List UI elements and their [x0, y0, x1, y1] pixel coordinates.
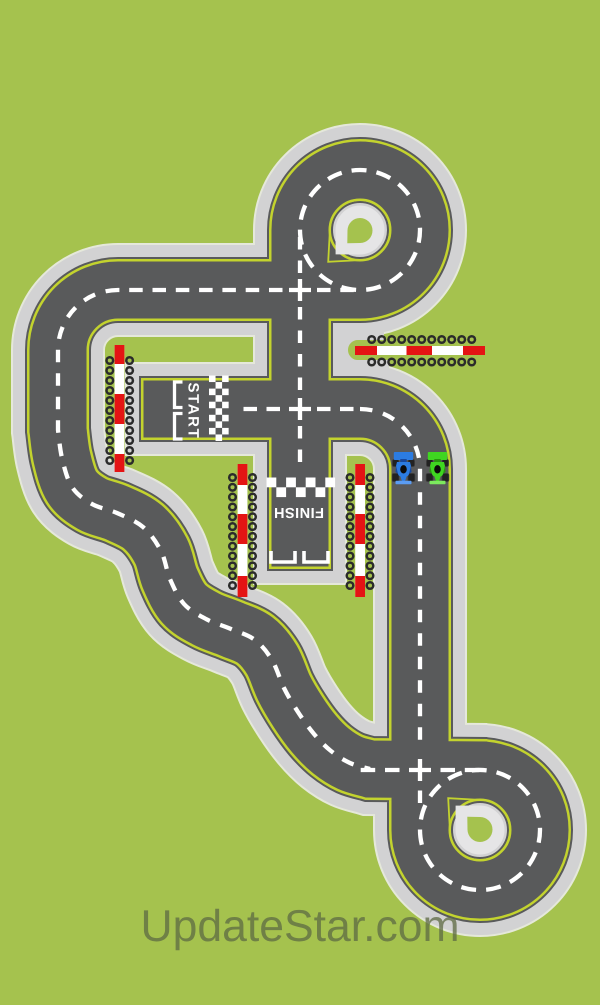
svg-text:FINISH: FINISH	[273, 504, 324, 520]
svg-text:UpdateStar.com: UpdateStar.com	[140, 902, 459, 951]
svg-text:START: START	[185, 383, 202, 440]
